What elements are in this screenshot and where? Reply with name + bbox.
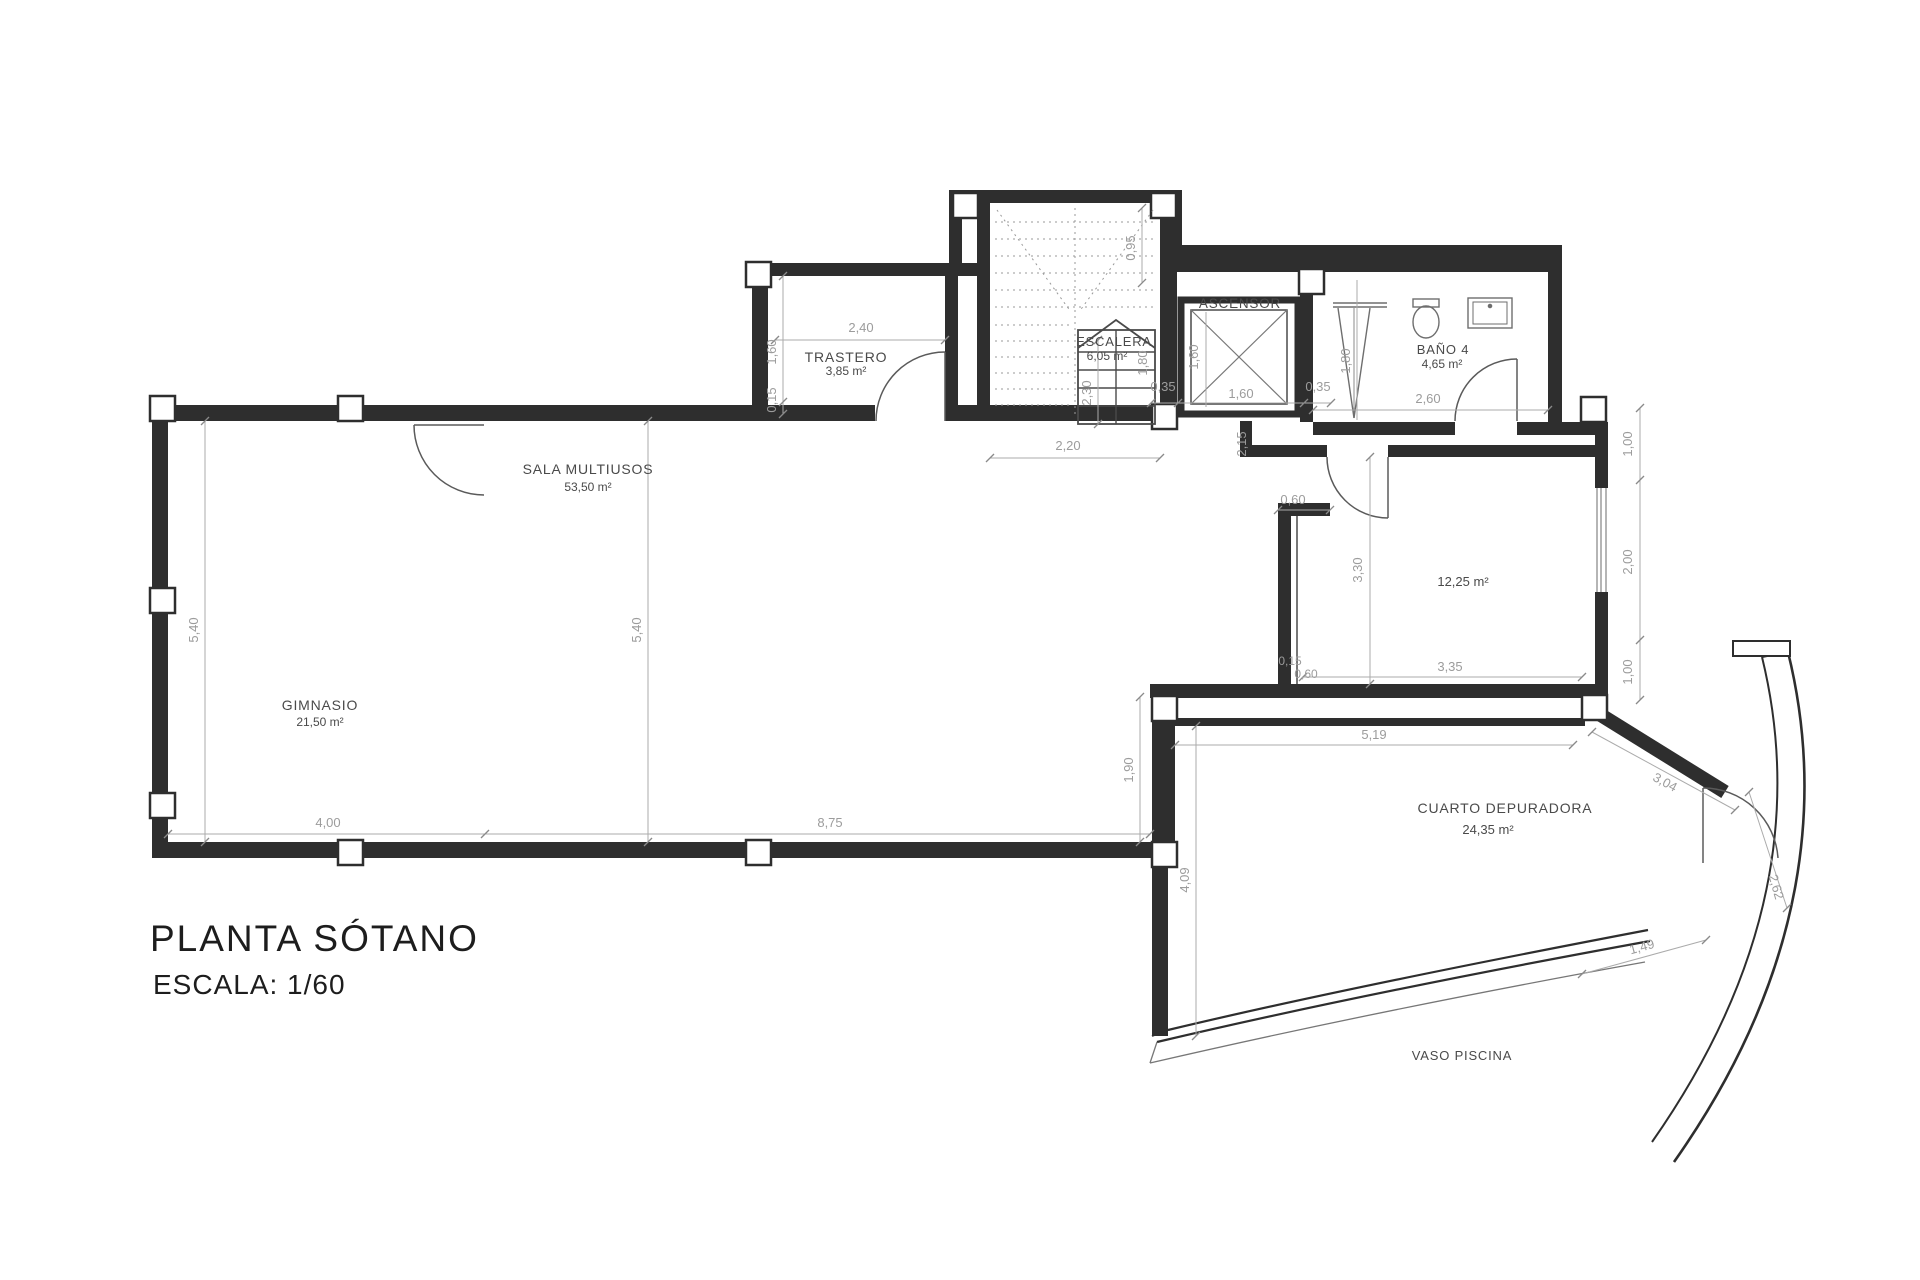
door-gimnasio [414, 425, 484, 495]
label-escalera: ESCALERA [1076, 334, 1152, 349]
pillar [338, 840, 363, 865]
pillar [1581, 397, 1606, 422]
dim-asc-right: 0,35 [1305, 379, 1330, 394]
walls-layer [152, 190, 1725, 1036]
floor-plan-drawing: 4,00 8,75 5,40 5,40 1,90 2,40 1,60 0,15 … [0, 0, 1920, 1280]
dim-bano-width: 2,60 [1415, 391, 1440, 406]
label-cuarto-depuradora-area: 24,35 m² [1462, 822, 1514, 837]
pillar [1582, 695, 1607, 720]
window-right-wing [1592, 488, 1611, 592]
dim-gym-width: 4,00 [315, 815, 340, 830]
dim-trastero-width: 2,40 [848, 320, 873, 335]
label-vaso-piscina: VASO PISCINA [1412, 1048, 1512, 1063]
dim-stair-width: 2,20 [1055, 438, 1080, 453]
label-bano4-area: 4,65 m² [1422, 357, 1463, 371]
label-ascensor: ASCENSOR [1199, 296, 1281, 311]
dim-sala-height: 5,40 [629, 617, 644, 642]
pillar [746, 262, 771, 287]
dim-sala-width: 8,75 [817, 815, 842, 830]
label-trastero: TRASTERO [805, 349, 888, 365]
dim-pool-edge: 2,62 [1766, 873, 1787, 901]
dim-room12-wall: 0,15 [1278, 654, 1302, 668]
dim-shower-len: 1,80 [1338, 348, 1353, 373]
pillar [150, 793, 175, 818]
dim-trastero-depth: 1,60 [764, 339, 779, 364]
door-bano4 [1455, 359, 1517, 421]
label-sala-derecha-area: 12,25 m² [1437, 574, 1489, 589]
dim-asc-width: 1,60 [1228, 386, 1253, 401]
label-gimnasio-area: 21,50 m² [296, 715, 343, 729]
dim-stair-upper: 0,95 [1123, 235, 1138, 260]
dim-step-height: 1,90 [1121, 757, 1136, 782]
dim-room12-nook: 0,60 [1294, 667, 1318, 681]
dim-gym-height: 5,40 [186, 617, 201, 642]
pillar [953, 193, 978, 218]
label-sala-multiusos: SALA MULTIUSOS [523, 461, 654, 477]
pillar [1151, 193, 1176, 218]
dim-dep-diag: 3,04 [1650, 769, 1679, 794]
label-cuarto-depuradora: CUARTO DEPURADORA [1418, 800, 1593, 816]
pillar [1152, 842, 1177, 867]
label-trastero-area: 3,85 m² [826, 364, 867, 378]
dim-nook-top: 0,60 [1280, 492, 1305, 507]
dim-asc-left: 0,35 [1150, 379, 1175, 394]
label-bano4: BAÑO 4 [1417, 342, 1469, 357]
title-block: PLANTA SÓTANO ESCALA: 1/60 [150, 918, 479, 1000]
label-gimnasio: GIMNASIO [282, 697, 358, 713]
label-sala-multiusos-area: 53,50 m² [564, 480, 611, 494]
dim-right-upper: 1,00 [1620, 431, 1635, 456]
door-sala-derecha [1327, 457, 1388, 518]
dim-trastero-wall: 0,15 [764, 387, 779, 412]
dim-stair-depth: 2,30 [1079, 380, 1094, 405]
label-escalera-area: 6,05 m² [1087, 349, 1128, 363]
pillar [746, 840, 771, 865]
dim-room12-width: 3,35 [1437, 659, 1462, 674]
dim-right-mid: 2,00 [1620, 549, 1635, 574]
toilet-icon [1413, 299, 1439, 338]
dim-right-lower: 1,00 [1620, 659, 1635, 684]
plan-title: PLANTA SÓTANO [150, 918, 479, 959]
dim-asc-height: 1,60 [1186, 344, 1201, 369]
pillar [1299, 269, 1324, 294]
dim-pool-inner: 1,49 [1628, 936, 1656, 957]
dim-hall-opening: 2,15 [1234, 431, 1249, 456]
pillar [1152, 696, 1177, 721]
pillars-layer [150, 193, 1607, 867]
pillar [150, 588, 175, 613]
dim-stair-side: 1,80 [1135, 350, 1150, 375]
dim-room12-height: 3,30 [1350, 557, 1365, 582]
plan-scale: ESCALA: 1/60 [153, 969, 346, 1000]
pillar [338, 396, 363, 421]
pillar [150, 396, 175, 421]
dim-dep-height: 4,09 [1177, 867, 1192, 892]
pool-band-stub [1733, 641, 1790, 656]
dim-dep-width: 5,19 [1361, 727, 1386, 742]
sink-icon [1468, 298, 1512, 328]
